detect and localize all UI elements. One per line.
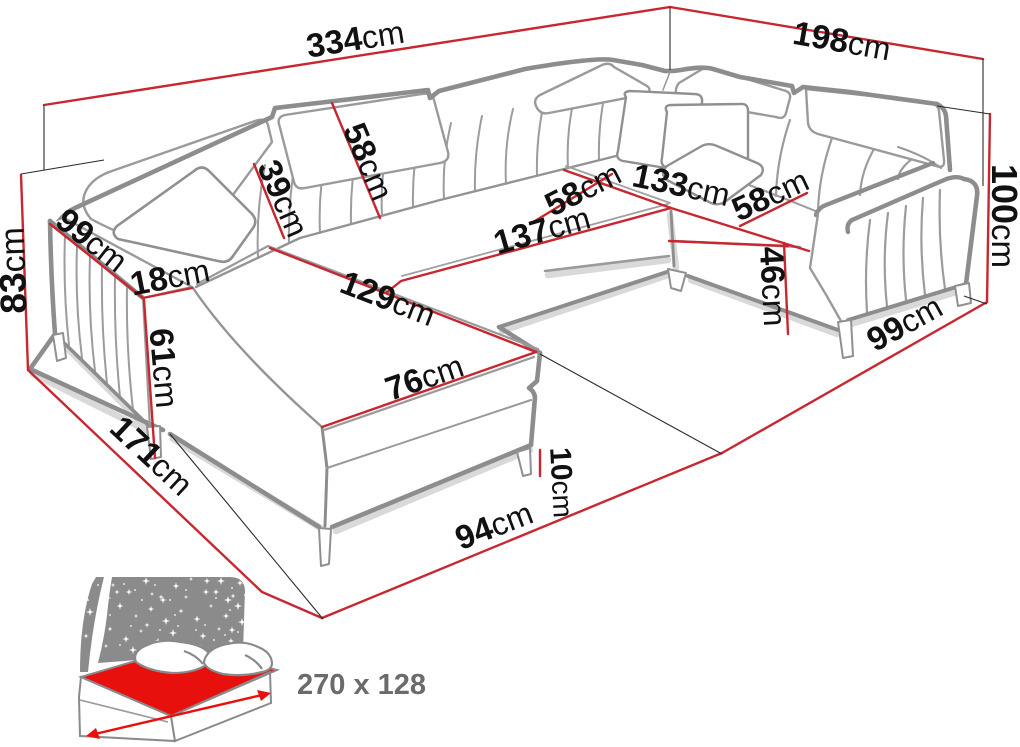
svg-text:83cm: 83cm	[0, 227, 35, 315]
svg-text:100cm: 100cm	[984, 164, 1020, 268]
svg-text:10cm: 10cm	[543, 446, 580, 518]
svg-text:270 x 128: 270 x 128	[297, 669, 426, 701]
svg-text:46cm: 46cm	[752, 246, 793, 328]
